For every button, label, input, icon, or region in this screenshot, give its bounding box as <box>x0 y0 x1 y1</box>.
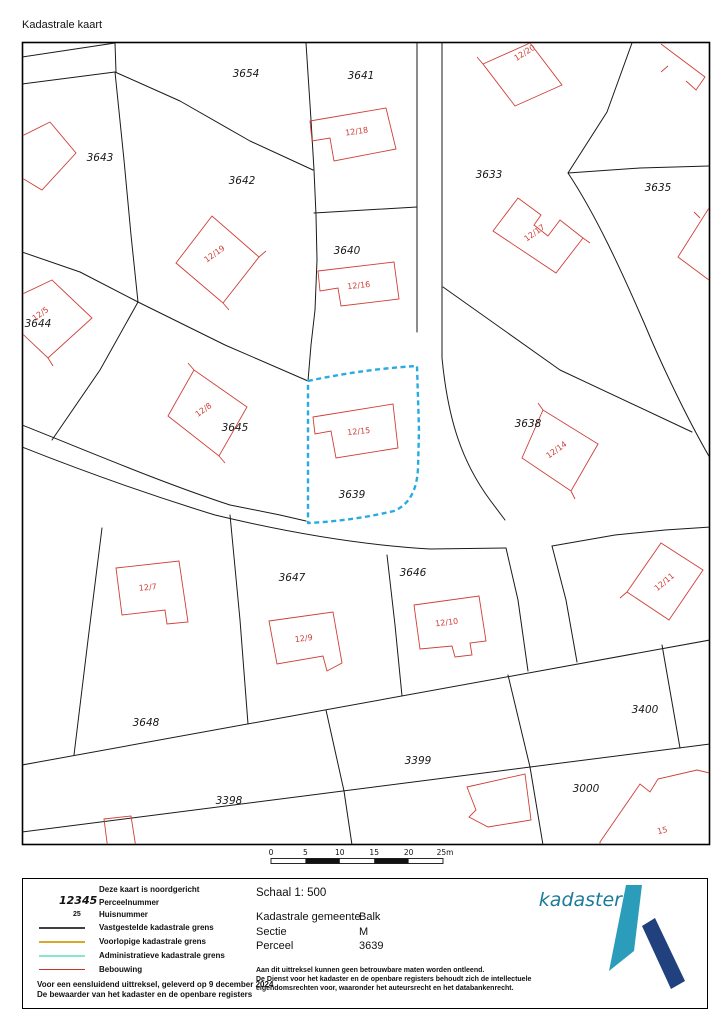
parcel-label: 3400 <box>632 704 659 716</box>
scale-tick: 0 <box>269 848 274 857</box>
scale-tick: 20 <box>404 848 414 857</box>
legend-panel: Deze kaart is noordgericht 12345 Perceel… <box>22 878 708 1009</box>
disclaimer-line-3: eigendomsrechten voor, waaronder het aut… <box>256 985 514 992</box>
parcel-label: 3647 <box>279 572 306 584</box>
parcel-label-highlighted: 3639 <box>339 489 366 501</box>
gemeente-label: Kadastrale gemeente <box>256 911 361 923</box>
parcel-label: 3638 <box>515 418 542 430</box>
bebouwing-sample <box>39 969 85 970</box>
logo-pen-bar <box>642 918 685 989</box>
scale-text: Schaal 1: 500 <box>256 887 326 899</box>
administratieve-grens-sample <box>39 955 85 957</box>
parcel-label: 3642 <box>229 175 256 187</box>
house-number: 12/2 <box>3 149 23 167</box>
scale-tick: 25m <box>437 848 454 857</box>
footer-line-2: De bewaarder van het kadaster en de open… <box>37 990 252 999</box>
voorlopige-grens-sample <box>39 941 85 943</box>
parcel-label: 3643 <box>87 152 114 164</box>
scale-tick: 15 <box>369 848 379 857</box>
house-number-sample: 25 <box>73 911 81 918</box>
sectie-label: Sectie <box>256 926 287 938</box>
house-number: 12/7 <box>138 582 157 593</box>
parcel-label: 3640 <box>334 245 361 257</box>
administratieve-grens-label: Administratieve kadastrale grens <box>99 951 225 960</box>
disclaimer-line-2: De Dienst voor het kadaster en de openba… <box>256 976 531 983</box>
map-canvas: 3654 3641 3643 3642 3633 3635 3640 3644 … <box>0 0 724 870</box>
vastgestelde-grens-label: Vastgestelde kadastrale grens <box>99 923 214 932</box>
parcel-label: 3645 <box>222 422 249 434</box>
scale-tick: 5 <box>303 848 308 857</box>
parcel-label: 3399 <box>405 755 432 767</box>
scale-bar: 0 5 10 15 20 25m <box>269 848 454 864</box>
sectie-value: M <box>359 926 368 938</box>
perceel-value: 3639 <box>359 940 383 952</box>
parcel-label: 3398 <box>216 795 243 807</box>
house-number-legend-label: Huisnummer <box>99 910 148 919</box>
parcel-label: 3654 <box>233 68 260 80</box>
map-border <box>23 43 710 845</box>
kadaster-wordmark: kadaster <box>539 889 623 911</box>
voorlopige-grens-label: Voorlopige kadastrale grens <box>99 937 206 946</box>
kadaster-logo: kadaster <box>531 881 701 1005</box>
vastgestelde-grens-sample <box>39 927 85 929</box>
parcel-label: 3633 <box>476 169 503 181</box>
parcel-label: 3648 <box>133 717 160 729</box>
kadaster-extract-page: Kadastrale kaart <box>0 0 724 1024</box>
parcel-label: 3635 <box>645 182 672 194</box>
footer-line-1: Voor een eensluidend uittreksel, gelever… <box>37 980 273 989</box>
bebouwing-label: Bebouwing <box>99 965 142 974</box>
parcel-number-label: Perceelnummer <box>99 898 159 907</box>
gemeente-value: Balk <box>359 911 380 923</box>
parcel-number-sample: 12345 <box>59 894 97 907</box>
parcel-label: 3641 <box>348 70 375 82</box>
parcel-label: 3646 <box>400 567 427 579</box>
perceel-label: Perceel <box>256 940 293 952</box>
parcel-label: 3000 <box>573 783 600 795</box>
scale-tick: 10 <box>335 848 345 857</box>
north-note: Deze kaart is noordgericht <box>99 885 199 894</box>
disclaimer-line-1: Aan dit uittreksel kunnen geen betrouwba… <box>256 967 484 974</box>
